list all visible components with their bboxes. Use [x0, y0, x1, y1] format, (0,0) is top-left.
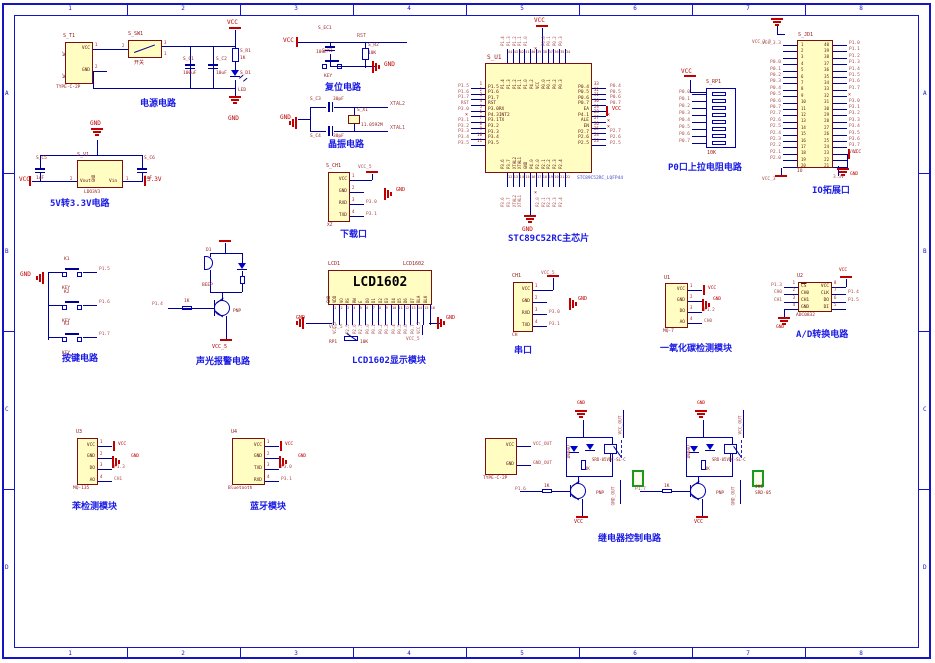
wire [783, 135, 797, 136]
pin-number: 12 [801, 113, 806, 117]
power-bar-icon [280, 441, 282, 451]
wire [783, 58, 797, 59]
net-label: P0.2 [679, 105, 690, 110]
wire [98, 458, 112, 459]
pin-number: 10 [477, 133, 482, 137]
pin-number: 34 [824, 81, 829, 85]
label: 2 [122, 44, 124, 48]
pin-number: 22 [824, 158, 829, 162]
ref-designator: S_CH1 [326, 164, 341, 169]
pin-name: DI [824, 306, 829, 311]
pin-name: VCC [536, 82, 540, 89]
label: 3.3V [147, 177, 161, 183]
label: GND [296, 316, 305, 321]
power-bar-icon [296, 37, 298, 47]
pin-number: 2 [100, 452, 102, 456]
net-label: P2.7 [770, 112, 781, 117]
zone-number: 8 [859, 6, 863, 12]
wire [350, 204, 364, 205]
label: VCC [283, 38, 294, 44]
wire [334, 131, 388, 132]
pin-number: 32 [594, 88, 599, 92]
zone-letter: D [923, 565, 927, 571]
wire [210, 292, 242, 293]
net-label: P3.7 [507, 197, 511, 207]
wire [210, 270, 211, 292]
capacitor-icon [328, 102, 330, 112]
net-label: P0.5 [770, 93, 781, 98]
pin-name: DO [90, 467, 95, 472]
pin-number: 6 [834, 296, 836, 300]
zone-letter: A [923, 91, 927, 97]
pin-name: P2.2 [547, 159, 551, 169]
zone-number: 2 [181, 6, 185, 12]
capacitor-icon [137, 168, 147, 170]
pin-number: 4 [793, 303, 795, 307]
pin-number: 14 [801, 126, 806, 130]
net-label: P3.0 [281, 466, 292, 471]
pin-number: 23 [824, 151, 829, 155]
wire [98, 446, 112, 447]
module-title: 下载口 [340, 231, 367, 240]
wire [833, 90, 847, 91]
pin-name: TXD [522, 324, 530, 329]
ref-designator: S_T1 [63, 34, 75, 39]
wire [783, 109, 797, 110]
pin-number: 4 [801, 62, 803, 66]
label: BEEP [202, 284, 213, 289]
power-bar-icon [219, 240, 231, 242]
wire [833, 167, 847, 168]
label: 1uF [36, 177, 44, 182]
wire [471, 88, 485, 89]
wire [533, 326, 547, 327]
pin-name: GND [254, 455, 262, 460]
pin-number: 34 [566, 51, 570, 55]
capacitor-icon [185, 68, 195, 70]
net-label: P2.2 [770, 144, 781, 149]
label: P1.5 [99, 268, 110, 273]
net-label: P0.5 [398, 324, 402, 334]
pin-number: 38 [543, 51, 547, 55]
pin-number: 1 [535, 284, 537, 288]
label: 11.0592M [361, 124, 383, 129]
pin-name: P1.1 [518, 79, 522, 89]
label: P1.4 [152, 303, 163, 308]
net-label: P1.5 [458, 85, 469, 90]
net-label: P2.0 [536, 197, 540, 207]
net-label: P1.6 [849, 80, 860, 85]
pin-number: 2 [801, 49, 803, 53]
pin-number: 1 [334, 307, 336, 311]
pin-number: 1 [480, 82, 482, 86]
zone-tick [466, 4, 467, 15]
wire [235, 62, 236, 70]
lcd-big-label: LCD1602 [353, 276, 408, 289]
key-bar [325, 60, 339, 62]
zone-tick [240, 648, 241, 659]
resistor-icon [712, 134, 726, 138]
zone-tick [579, 4, 580, 15]
ground-icon [778, 317, 790, 325]
pin-number: 1 [267, 440, 269, 444]
wire [784, 287, 798, 288]
wire [783, 154, 797, 155]
net-label: P2.4 [770, 132, 781, 137]
net-label: P0.0 [770, 61, 781, 66]
ground-icon [36, 272, 44, 284]
wire [517, 465, 531, 466]
capacitor-icon [208, 64, 218, 66]
pin-name: D0 [366, 298, 370, 303]
pin-number: 19 [801, 158, 806, 162]
relay-link-dashed [621, 440, 622, 458]
label: GND [446, 316, 455, 321]
pin-name: P2.3 [553, 159, 557, 169]
ref-designator: U3 [76, 430, 82, 435]
zone-tick [127, 4, 128, 15]
label: VCC [118, 443, 126, 448]
resistor-icon [712, 141, 726, 145]
pin-number: 44 [508, 51, 512, 55]
schematic-sheet[interactable]: 1122334455667788AABBCCDD电源电路复位电路晶振电路STC8… [0, 0, 935, 663]
ground-icon [524, 215, 536, 223]
wire [48, 305, 62, 306]
pin-number: 3 [347, 307, 349, 311]
wire [672, 491, 690, 492]
pin-name: P0.5 [578, 91, 589, 96]
wire [471, 122, 485, 123]
net-label: P2.4 [559, 197, 563, 207]
pin-number: 16 [801, 139, 806, 143]
pin-number: 35 [824, 75, 829, 79]
net-label: P0.6 [679, 133, 690, 138]
module-title: 继电器控制电路 [598, 535, 661, 544]
wire [582, 499, 583, 517]
power-bar-icon [229, 27, 241, 29]
label: RST [357, 34, 366, 39]
wire [142, 155, 143, 168]
zone-tick [805, 648, 806, 659]
pin-name: XTAL2 [513, 157, 517, 169]
pin-number: 4 [100, 475, 102, 479]
pin-number: 13 [514, 176, 518, 180]
ref-designator: U4 [231, 430, 237, 435]
power-bar-icon [536, 25, 548, 27]
pin-name: GND [327, 296, 331, 303]
pin-name: VCC [677, 288, 685, 293]
ref-designator: LCD1 [328, 262, 340, 267]
zone-number: 7 [746, 6, 750, 12]
pin-name: BLA [417, 296, 421, 303]
wire [547, 290, 553, 291]
wire [783, 83, 797, 84]
wire [310, 107, 311, 131]
wire [93, 49, 107, 50]
pin-number: 21 [560, 176, 564, 180]
pin-name: P4.2 [530, 79, 534, 89]
key-button-icon [62, 337, 67, 342]
ref-designator: S_U1 [487, 55, 501, 61]
label: VCC [681, 69, 692, 75]
module-title: 声光报警电路 [196, 358, 250, 367]
label: VCC_OUT [620, 415, 625, 434]
wire [833, 154, 847, 155]
net-label: P1.0 [849, 42, 860, 47]
pin-number: 3 [480, 93, 482, 97]
pin-number: 40 [824, 43, 829, 47]
net-label: P3.4 [849, 125, 860, 130]
net-label: CH0 [704, 320, 712, 325]
wire [142, 172, 143, 181]
net-label: VCC_5 [417, 322, 421, 334]
label: SRD-05 [755, 492, 771, 497]
zone-tick [353, 648, 354, 659]
pin-name: P1.4 [501, 79, 505, 89]
ref-designator: CH1 [512, 274, 521, 279]
pin-name: VCC [522, 288, 530, 293]
pin-number: 7 [373, 307, 375, 311]
net-label: P3.7 [849, 144, 860, 149]
zone-number: 8 [859, 651, 863, 657]
net-label: P0.7 [679, 140, 690, 145]
pin-name: D2 [379, 298, 383, 303]
pin-number: 1 [352, 174, 354, 178]
wire [98, 481, 112, 482]
wire [583, 420, 584, 437]
pin-name: CH1 [801, 299, 809, 304]
net-label: XTAL1 [518, 195, 522, 207]
ground-icon [372, 61, 380, 73]
pin-name: AO [90, 479, 95, 484]
no-connect-mark: × [534, 47, 537, 52]
net-label: P0.3 [559, 36, 563, 46]
pin-number: 27 [824, 126, 829, 130]
wire [703, 420, 704, 437]
pin-name: P3.6 [501, 159, 505, 169]
label: GND [522, 227, 533, 233]
wire [783, 115, 797, 116]
pin-name: GND [524, 162, 528, 169]
component-box [632, 470, 644, 487]
pin-number: 17 [537, 176, 541, 180]
zone-number: 4 [407, 6, 411, 12]
label: PNP [596, 492, 604, 497]
net-label: P2.1 [542, 197, 546, 207]
pin-name: RS [346, 298, 350, 303]
part-value: ADC0832 [796, 314, 815, 319]
pin-number: 31 [824, 100, 829, 104]
module-title: STC89C52RC主芯片 [508, 235, 589, 244]
pin-number: 42 [520, 51, 524, 55]
pin-number: 27 [594, 116, 599, 120]
pin-number: 4 [480, 99, 482, 103]
pin-name: VCC [506, 444, 514, 449]
wire [517, 446, 531, 447]
pin-name: P2.5 [578, 142, 589, 147]
pin-number: 11 [477, 139, 482, 143]
label: XTAL1 [390, 126, 405, 131]
key-bar [65, 301, 79, 303]
resistor-icon [712, 127, 726, 131]
wire [533, 290, 547, 291]
wire [350, 180, 364, 181]
wire [265, 458, 279, 459]
pin-number: 32 [824, 94, 829, 98]
wire [83, 272, 97, 273]
pin-number: 6 [366, 307, 368, 311]
label: 3.3V [833, 176, 844, 181]
wire [123, 181, 143, 182]
pin-name: D1 [372, 298, 376, 303]
net-label: P1.1 [849, 48, 860, 53]
capacitor-icon [35, 168, 45, 170]
label: 1K [705, 467, 710, 471]
label: LED [238, 89, 246, 94]
pin-number: 1 [95, 43, 97, 47]
zone-number: 5 [520, 651, 524, 657]
wire [471, 99, 485, 100]
pin-number: 30 [594, 99, 599, 103]
pin-name: P2.4 [559, 159, 563, 169]
net-label: P0.1 [547, 36, 551, 46]
pin-number: 8 [379, 307, 381, 311]
pin-name: CS [801, 285, 806, 290]
pin-number: 3 [267, 463, 269, 467]
capacitor-icon [137, 172, 147, 174]
label: S_R2 [368, 44, 379, 49]
zone-tick [127, 648, 128, 659]
net-label: P3.1 [849, 106, 860, 111]
wire [783, 103, 797, 104]
label: RP1 [329, 341, 337, 346]
net-label: P0.1 [770, 68, 781, 73]
wire [783, 45, 797, 46]
net-label: P1.1 [518, 36, 522, 46]
pin-number: 5 [801, 68, 803, 72]
pin-name: VCC [87, 444, 95, 449]
pin-number: 39 [824, 49, 829, 53]
pin-number: 21 [824, 164, 829, 168]
pin-number: 3 [801, 55, 803, 59]
wire [833, 147, 847, 148]
pin-name: RXD [254, 479, 262, 484]
net-label: P0.2 [379, 324, 383, 334]
label: 100uF [183, 72, 197, 77]
label: VCC_3 [762, 178, 776, 183]
wire [777, 26, 778, 34]
pin-name: GND [522, 300, 530, 305]
pin-number: 2 [535, 296, 537, 300]
pin-name: VO [340, 298, 344, 303]
wire [833, 83, 847, 84]
net-label: P1.7 [849, 87, 860, 92]
net-label: P0.3 [385, 324, 389, 334]
label: VCC [839, 269, 847, 274]
net-label: P0.6 [404, 324, 408, 334]
net-label: P0.0 [366, 324, 370, 334]
label: VCC [574, 520, 583, 525]
resistor-icon [712, 106, 726, 110]
wire [83, 337, 97, 338]
label: D1 [206, 249, 211, 254]
wire [162, 46, 235, 47]
pin-name: P0.0 [542, 79, 546, 89]
part-value: LCD1602 [403, 262, 424, 267]
resistor-icon [662, 489, 672, 493]
wire [242, 284, 243, 292]
pin-number: 8 [480, 122, 482, 126]
pin-number: 37 [824, 62, 829, 66]
resistor-icon [712, 120, 726, 124]
label: VCC [285, 443, 293, 448]
pin-name: GND [82, 69, 90, 74]
label: K1 [64, 258, 69, 263]
label: GND [697, 402, 705, 407]
pin-name: D6 [404, 298, 408, 303]
net-label: P2.1 [770, 151, 781, 156]
net-label: P3.4 [458, 136, 469, 141]
zone-letter: C [923, 407, 927, 413]
label: 1N4007 [687, 445, 691, 459]
zone-tick [353, 4, 354, 15]
wire [533, 302, 547, 303]
pin-number: 36 [824, 68, 829, 72]
label: VCC_5 [212, 345, 227, 350]
net-label: P3.1 [366, 213, 377, 218]
net-label: P3.3 [849, 119, 860, 124]
pin-number: 3 [690, 306, 692, 310]
pin-number: 15 [525, 176, 529, 180]
label: 1K [240, 57, 245, 62]
wire [225, 243, 226, 253]
pin-name: P1.2 [513, 79, 517, 89]
pin-number: 4 [690, 317, 692, 321]
zone-letter: B [5, 249, 9, 255]
ground-icon [437, 317, 445, 329]
net-label: P0.7 [770, 106, 781, 111]
label: S_C2 [216, 58, 227, 63]
module-title: A/D转换电路 [796, 331, 848, 340]
label: 10K [360, 341, 368, 346]
wire [265, 481, 279, 482]
wire [692, 129, 706, 130]
label: KEY [324, 75, 332, 80]
ground-icon [384, 188, 392, 200]
label: P1.7 [635, 488, 646, 493]
wire [310, 107, 326, 108]
pin-name: D3 [385, 298, 389, 303]
net-label: P2.6 [353, 324, 357, 334]
label: 1N4007 [567, 445, 571, 459]
pin-number: 39 [537, 51, 541, 55]
part-value: Bluetooth [228, 487, 252, 492]
pin-number: 17 [801, 145, 806, 149]
capacitor-icon [325, 46, 335, 48]
pin-number: 5 [834, 303, 836, 307]
pin-number: 1 [793, 281, 795, 285]
wire [310, 131, 326, 132]
module-title: 晶振电路 [328, 141, 364, 150]
resistor-icon [712, 99, 726, 103]
wire [783, 64, 797, 65]
label: 10uF [216, 72, 227, 77]
pin-number: 13 [411, 307, 415, 311]
pin-number: 2 [340, 307, 342, 311]
wire [350, 216, 364, 217]
pin-name: XTAL1 [518, 157, 522, 169]
net-label: P3.5 [458, 142, 469, 147]
